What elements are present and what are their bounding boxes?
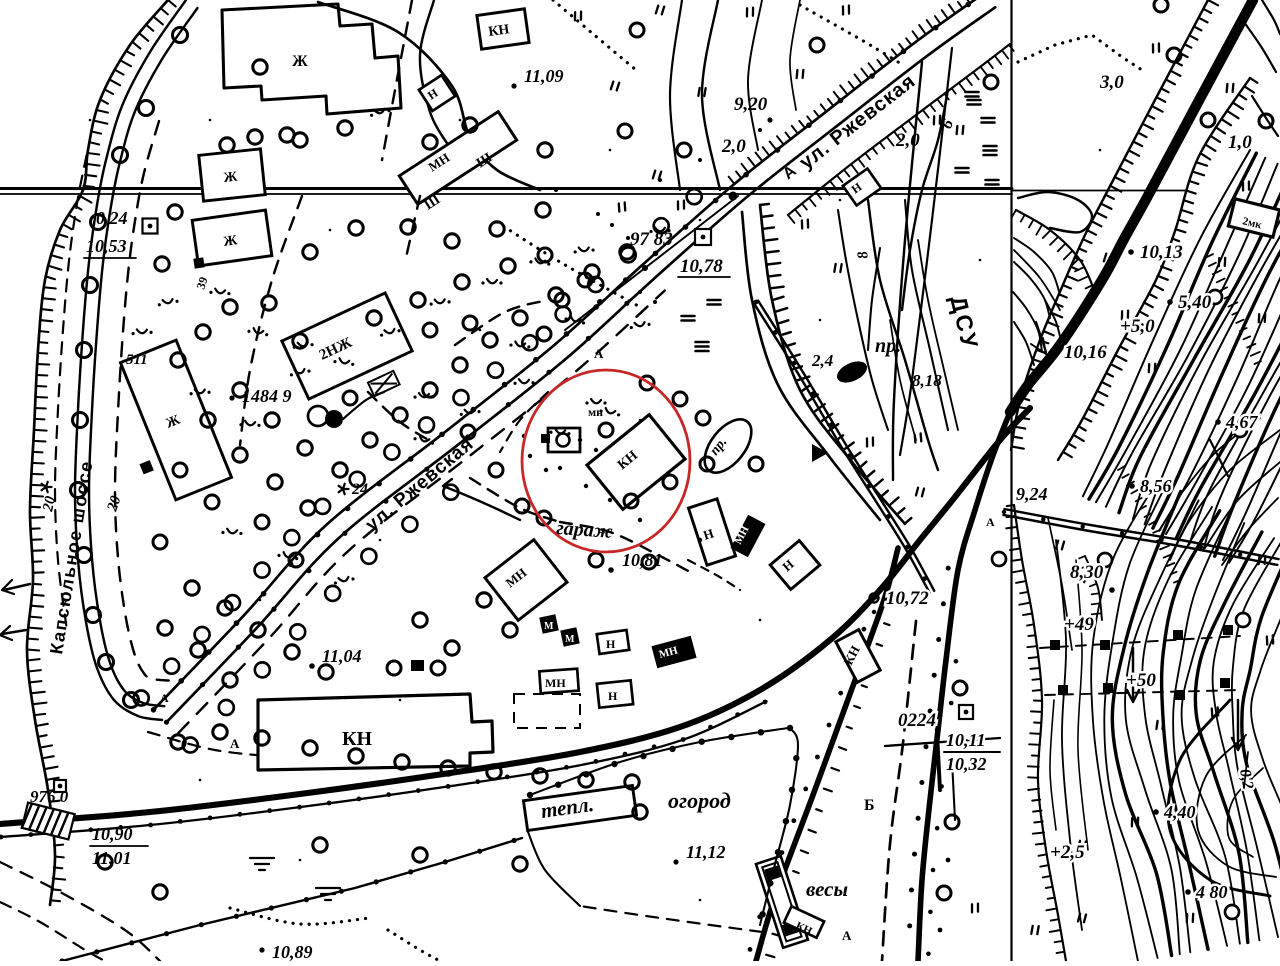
svg-text:10,53: 10,53 — [86, 236, 127, 256]
svg-text:24: 24 — [351, 481, 368, 498]
svg-text:9,20: 9,20 — [734, 94, 768, 115]
svg-text:4 80: 4 80 — [1195, 882, 1228, 902]
svg-text:10,72: 10,72 — [886, 588, 929, 609]
svg-text:511: 511 — [126, 352, 148, 368]
svg-text:10,89: 10,89 — [272, 942, 313, 961]
svg-text:весы: весы — [806, 877, 848, 901]
svg-text:2,0: 2,0 — [895, 130, 920, 151]
svg-text:+50: +50 — [1126, 670, 1156, 691]
svg-text:8,30: 8,30 — [1070, 562, 1104, 583]
svg-text:2,4: 2,4 — [811, 351, 833, 370]
svg-text:1484 9: 1484 9 — [242, 386, 292, 406]
svg-text:+2,5: +2,5 — [1050, 842, 1085, 863]
svg-text:А: А — [986, 515, 995, 529]
svg-text:+5,0: +5,0 — [1120, 316, 1155, 337]
svg-text:огород: огород — [668, 788, 731, 813]
svg-text:11,12: 11,12 — [686, 842, 726, 862]
svg-text:10,32: 10,32 — [946, 754, 987, 774]
svg-text:Ж: Ж — [292, 53, 308, 70]
svg-text:0224: 0224 — [898, 710, 936, 731]
svg-text:9,24: 9,24 — [1016, 484, 1048, 504]
svg-text:Н: Н — [608, 689, 618, 703]
svg-text:3,0: 3,0 — [1099, 72, 1124, 93]
svg-text:4,67: 4,67 — [1225, 412, 1259, 432]
svg-text:КН: КН — [487, 22, 510, 40]
svg-text:МН: МН — [545, 676, 566, 690]
svg-text:5,40: 5,40 — [1178, 292, 1212, 313]
svg-text:М: М — [544, 621, 554, 632]
svg-text:2,0: 2,0 — [721, 136, 746, 157]
svg-text:М: М — [565, 634, 575, 645]
svg-text:10,90: 10,90 — [92, 824, 133, 844]
svg-text:Ж: Ж — [222, 233, 238, 250]
svg-text:10,11: 10,11 — [946, 730, 986, 750]
svg-text:А: А — [230, 736, 240, 751]
svg-text:11,09: 11,09 — [524, 66, 564, 86]
svg-text:10,13: 10,13 — [1140, 242, 1183, 263]
svg-text:А: А — [842, 928, 852, 943]
svg-text:4,40: 4,40 — [1163, 802, 1196, 822]
svg-text:11,04: 11,04 — [322, 646, 362, 666]
svg-text:+49: +49 — [1064, 614, 1094, 635]
svg-text:1,0: 1,0 — [1228, 132, 1252, 153]
svg-text:10,78: 10,78 — [680, 256, 723, 277]
svg-text:А: А — [160, 691, 169, 705]
svg-text:КН: КН — [342, 728, 373, 750]
svg-text:Б: Б — [864, 797, 875, 814]
svg-text:8,56: 8,56 — [1140, 476, 1172, 496]
svg-text:0 24: 0 24 — [96, 208, 128, 228]
svg-text:Н: Н — [606, 637, 616, 651]
svg-text:10,16: 10,16 — [1064, 342, 1107, 363]
svg-text:Ж: Ж — [223, 170, 238, 186]
svg-text:А: А — [594, 346, 604, 361]
